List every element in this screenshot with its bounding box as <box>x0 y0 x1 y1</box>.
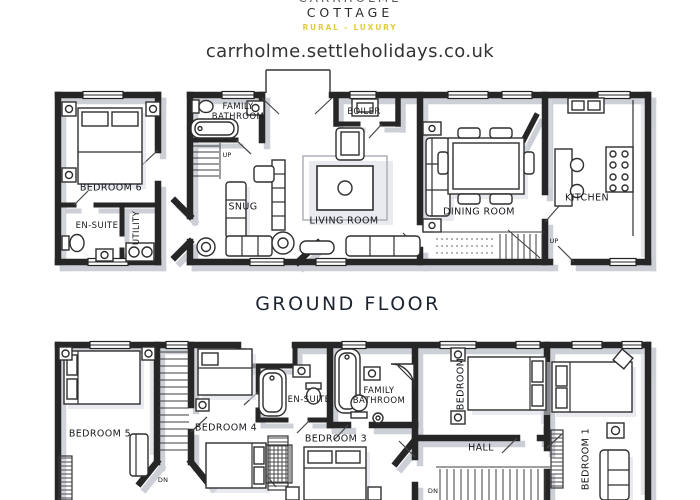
bedroom1-sofa <box>600 450 629 500</box>
label-bedroom4: BEDROOM 4 <box>195 423 257 434</box>
label-bedroom1: BEDROOM 1 <box>581 428 592 490</box>
living-bench <box>300 241 334 254</box>
label-ensuite-first: EN-SUITE <box>288 395 331 405</box>
label-bedroom3: BEDROOM 3 <box>305 434 367 445</box>
dining-table-set <box>438 128 534 204</box>
bedroom4-nightstand <box>196 399 209 411</box>
bedroom2-bed <box>468 357 546 410</box>
bedroom4-bed-bottom <box>206 443 266 488</box>
label-kitchen: KITCHEN <box>565 193 609 204</box>
label-ensuite-ground: EN-SUITE <box>76 221 119 231</box>
label-bedroom6: BEDROOM 6 <box>80 183 142 194</box>
stairs-up-dining <box>434 230 545 259</box>
bedroom1-bed <box>552 362 632 412</box>
kitchen-fixtures <box>555 98 633 236</box>
label-dn-hall: DN <box>428 487 438 495</box>
label-up-snug: UP <box>222 151 231 159</box>
label-utility: UTILITY <box>132 211 142 245</box>
label-snug: SNUG <box>228 202 257 213</box>
entrance-canopy <box>266 70 330 93</box>
label-bedroom2: BEDROOM <box>456 358 467 410</box>
bedroom4-bed-top <box>198 349 252 395</box>
label-hall: HALL <box>468 443 494 454</box>
label-up-dining: UP <box>549 237 558 245</box>
stairs-down-hall <box>436 467 550 500</box>
utility-washer <box>126 243 154 261</box>
living-side-table <box>272 232 294 254</box>
label-boiler: BOILER <box>347 107 380 117</box>
floorplan-drawing <box>0 0 700 500</box>
label-bedroom5: BEDROOM 5 <box>69 429 131 440</box>
snug-chair <box>254 166 274 182</box>
ground-floor-title: GROUND FLOOR <box>255 293 441 315</box>
label-living-room: LIVING ROOM <box>309 216 378 227</box>
bedroom5-sofa <box>130 434 148 476</box>
living-armchair <box>336 128 364 160</box>
label-dn-stairwell: DN <box>158 476 168 484</box>
living-sofa-bottom <box>346 236 420 256</box>
snug-table <box>197 238 215 256</box>
bedroom1-radiator <box>551 430 563 488</box>
label-dining-room: DINING ROOM <box>443 207 515 218</box>
bedroom6-bed <box>78 108 142 184</box>
ensuite-fixtures <box>62 235 113 262</box>
label-family-bathroom-first: FAMILY BATHROOM <box>349 386 409 406</box>
label-family-bathroom-ground: FAMILY BATHROOM <box>208 102 268 122</box>
bedroom5-radiator <box>59 456 72 500</box>
bedroom5-bed <box>64 351 140 404</box>
bedroom3-bed <box>304 447 366 500</box>
floorplan-page: CARRHOLME COTTAGE RURAL - LUXURY carrhol… <box>0 0 700 500</box>
bedroom3-wardrobe <box>266 445 292 483</box>
